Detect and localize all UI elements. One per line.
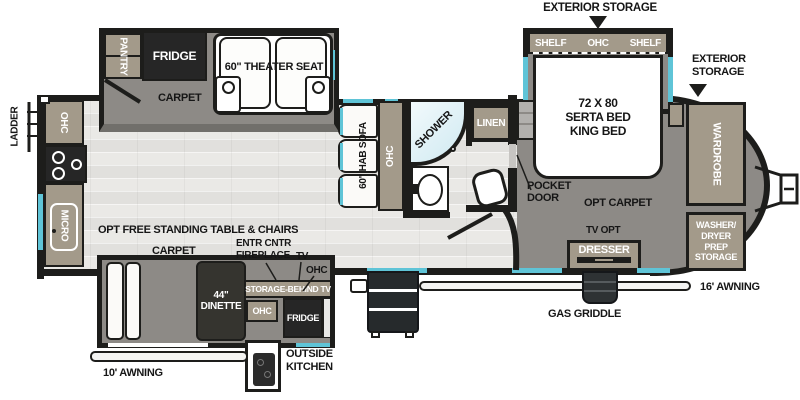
pocket-door-leader (517, 155, 531, 190)
rv-floorplan: PANTRY FRIDGE CARPET 60" THEATER SEAT 60… (0, 0, 800, 400)
ladder-mount (40, 96, 49, 103)
ohc-leader (303, 276, 314, 291)
overlay-lines (0, 0, 800, 400)
entry-curved-wall (505, 210, 516, 270)
tv-leader (299, 262, 301, 280)
entr-cntr-leader (266, 263, 276, 280)
pantry-door-line (105, 80, 140, 102)
entry-door-swing (448, 214, 492, 238)
